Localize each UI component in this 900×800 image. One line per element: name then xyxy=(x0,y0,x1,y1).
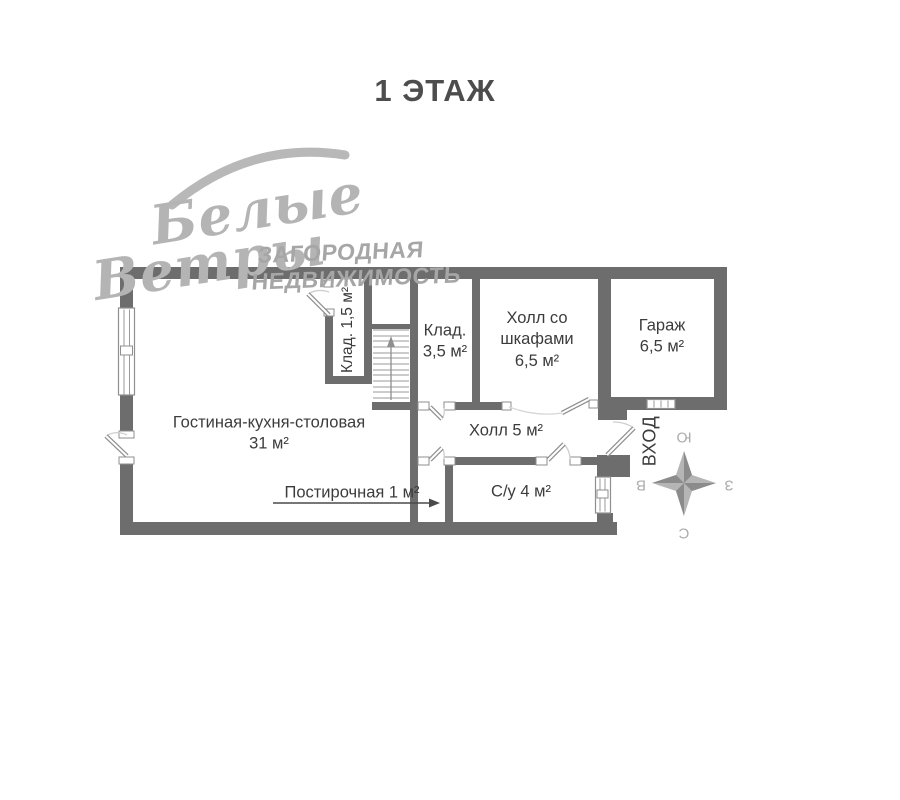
compass-east-label: В xyxy=(636,477,646,494)
room-label-bathroom: С/у 4 м² xyxy=(491,481,551,502)
room-name: Клад. xyxy=(423,321,467,342)
entrance-door-swing xyxy=(607,422,634,455)
page-title: 1 ЭТАЖ xyxy=(374,73,495,109)
room-name: Гостиная-кухня-столовая xyxy=(173,413,365,434)
compass-west-label: З xyxy=(724,477,733,494)
room-name-line2: шкафами xyxy=(500,329,573,350)
stairs-icon xyxy=(373,330,409,400)
room-area: 6,5 м² xyxy=(639,337,686,358)
window xyxy=(596,477,611,513)
door-swing xyxy=(430,448,444,460)
room-name-line1: Холл со xyxy=(500,308,573,329)
entrance-label: ВХОД xyxy=(638,416,661,466)
room-area: 3,5 м² xyxy=(423,342,467,363)
room-label-hall-wardrobes: Холл со шкафами 6,5 м² xyxy=(500,308,573,372)
room-label-laundry: Постирочная 1 м² xyxy=(284,482,419,503)
room-name: Гараж xyxy=(639,316,686,337)
room-label-garage: Гараж 6,5 м² xyxy=(639,316,686,359)
exterior-walls xyxy=(120,267,727,535)
room-area: 6,5 м² xyxy=(500,351,573,372)
window xyxy=(119,308,135,395)
door-swing xyxy=(430,407,444,419)
door-swing xyxy=(548,444,570,460)
room-label-closet-large: Клад. 3,5 м² xyxy=(423,321,467,364)
room-label-hall: Холл 5 м² xyxy=(469,420,543,441)
compass-north-label: С xyxy=(679,525,690,542)
door-swing xyxy=(308,290,329,315)
floor-plan-drawing xyxy=(0,0,900,800)
compass-south-label: Ю xyxy=(676,429,691,446)
garage-vent-window xyxy=(647,400,675,409)
door-swing xyxy=(509,399,589,414)
room-label-living: Гостиная-кухня-столовая 31 м² xyxy=(173,413,365,456)
room-area: 31 м² xyxy=(173,434,365,455)
floor-plan-page: 1 ЭТАЖ Гостиная-кухня-столовая 31 м² Кла… xyxy=(0,0,900,800)
room-label-closet-small: Клад. 1,5 м² xyxy=(338,287,358,373)
